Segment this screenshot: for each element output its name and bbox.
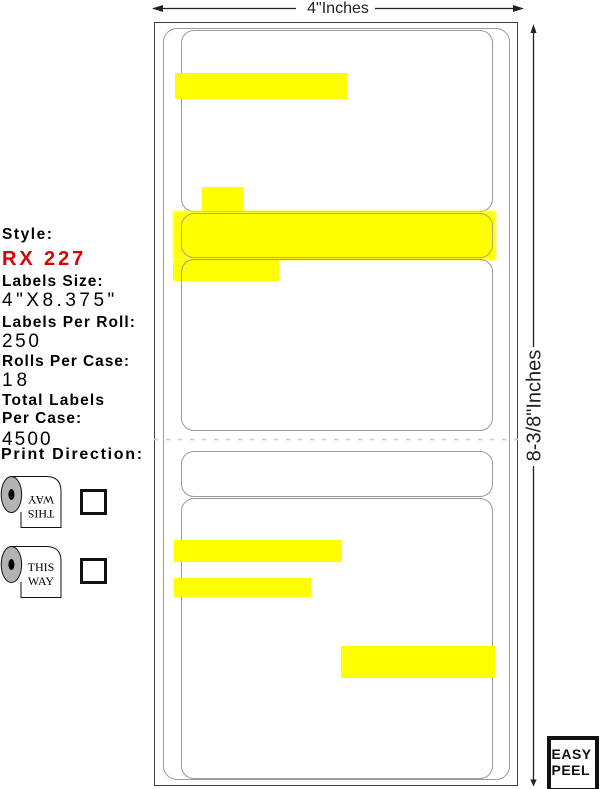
svg-text:WAY: WAY bbox=[28, 574, 55, 588]
svg-text:THIS: THIS bbox=[28, 560, 55, 574]
svg-text:THIS: THIS bbox=[28, 507, 55, 521]
svg-text:WAY: WAY bbox=[28, 493, 55, 507]
